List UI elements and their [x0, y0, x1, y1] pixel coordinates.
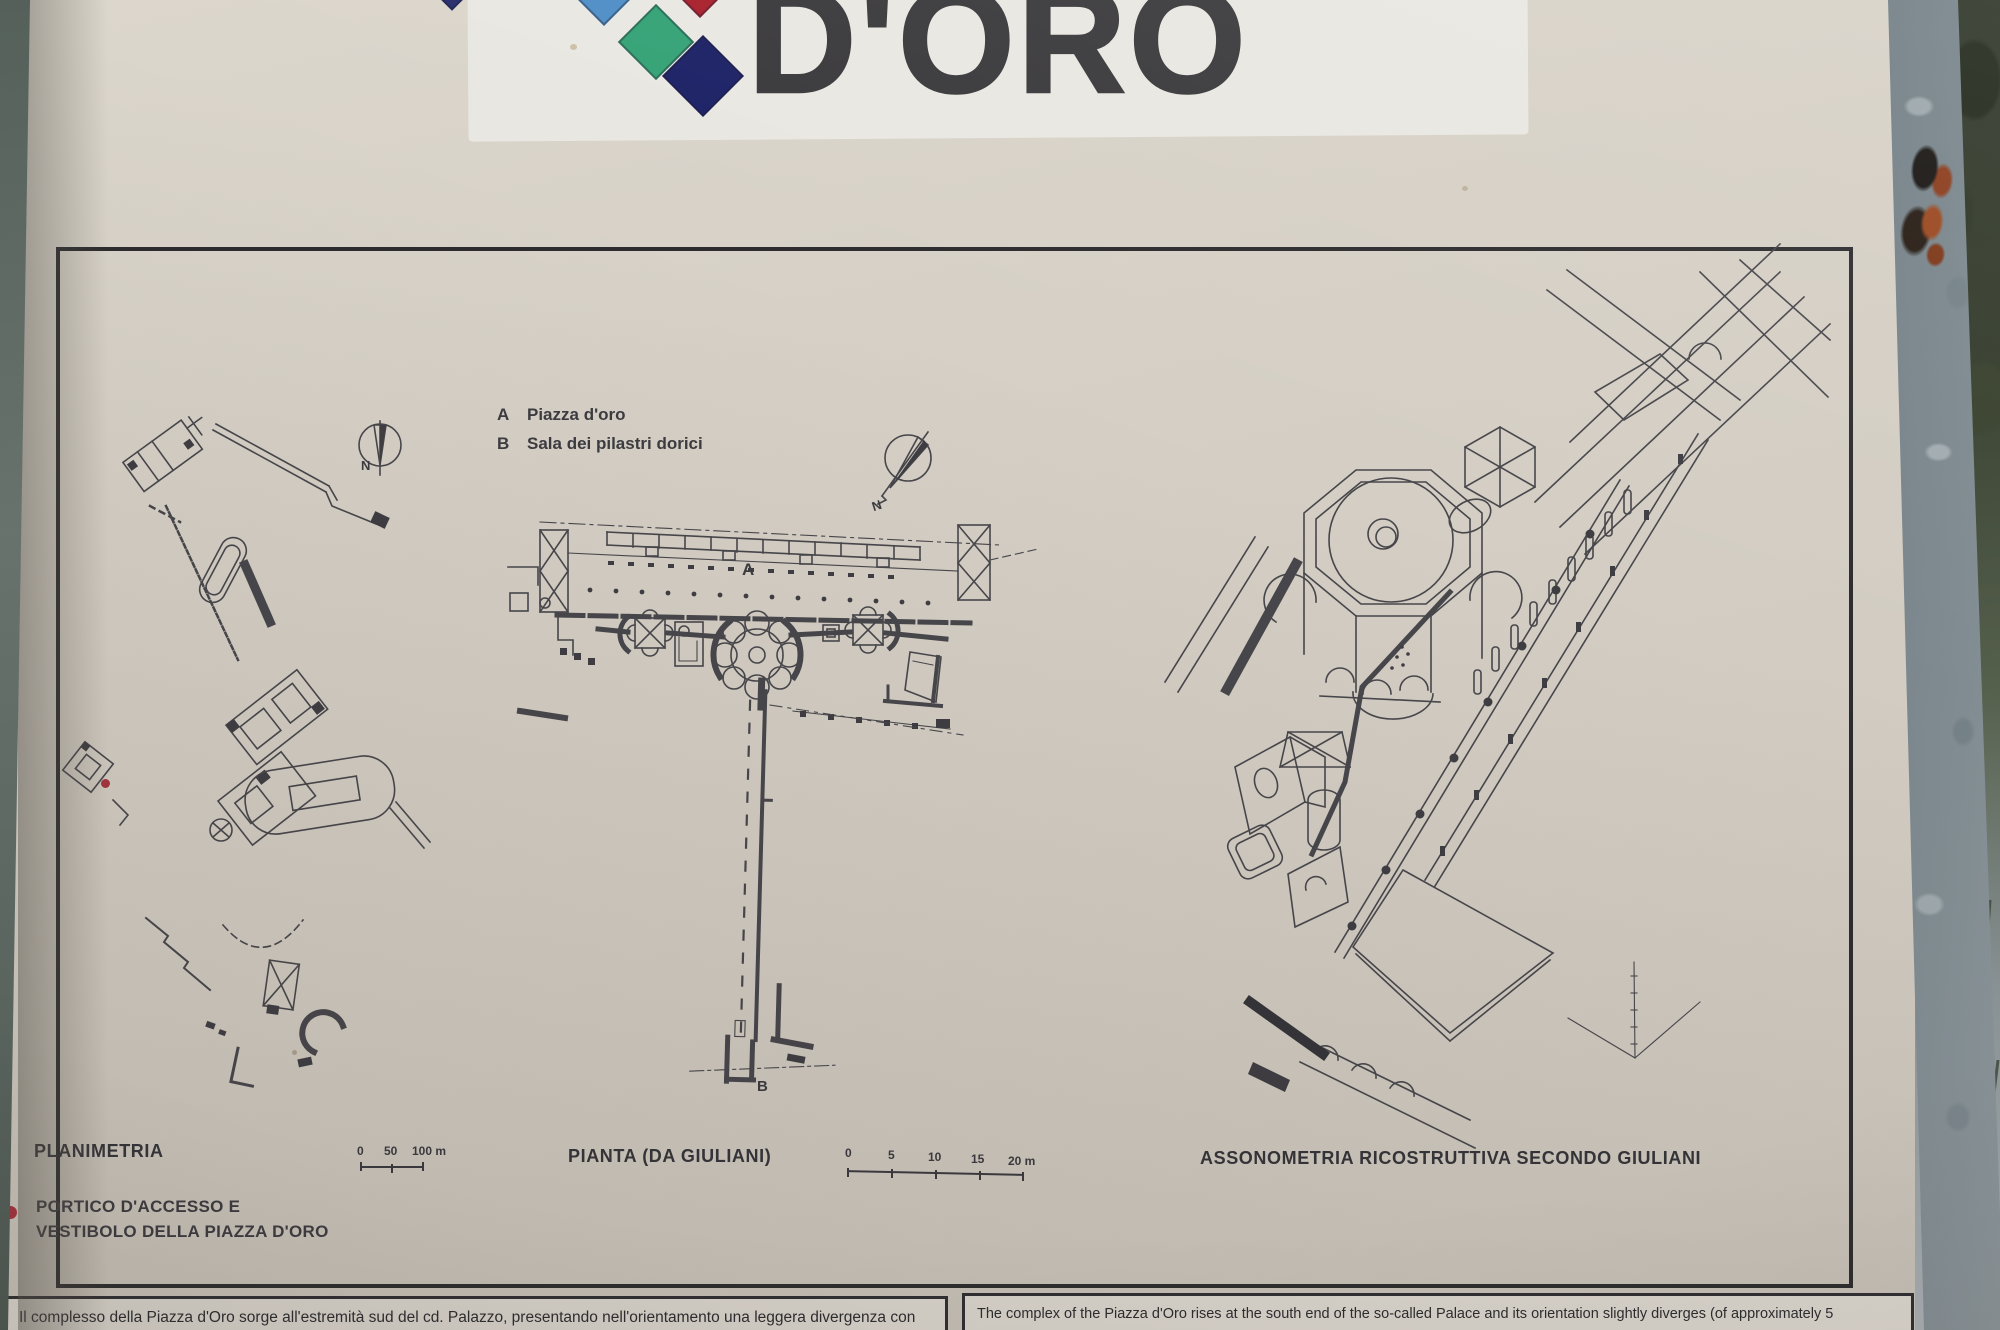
- legend-label-a: Piazza d'oro: [527, 405, 626, 425]
- section-title-pianta: PIANTA (DA GIULIANI): [568, 1146, 771, 1167]
- panel-stain: [570, 44, 577, 50]
- scalebar-tick-label: 50: [384, 1144, 397, 1158]
- caption-text-italian: Il complesso della Piazza d'Oro sorge al…: [7, 1299, 945, 1330]
- scalebar-tick-label: 20 m: [1008, 1154, 1035, 1168]
- north-arrow-icon: [348, 413, 412, 487]
- legend-key-b: B: [497, 434, 509, 454]
- pianta-floor-plan-drawing: [498, 505, 1058, 1117]
- panel-stain: [1462, 186, 1468, 191]
- scalebar-tick-label: 100 m: [412, 1144, 446, 1158]
- plan-label-a: A: [742, 560, 754, 580]
- sign-title: D'ORO: [748, 0, 1268, 115]
- caption-text-english: The complex of the Piazza d'Oro rises at…: [965, 1296, 1911, 1330]
- scalebar-tick-label: 10: [928, 1150, 941, 1164]
- assonometria-axonometric-drawing: [1140, 262, 1830, 1108]
- scalebar-tick-label: 0: [845, 1146, 852, 1160]
- plan-label-b: B: [757, 1078, 768, 1095]
- scalebar-tick-label: 0: [357, 1144, 364, 1158]
- panel-stain: [292, 1050, 297, 1055]
- scalebar-tick-label: 5: [888, 1148, 895, 1162]
- sign-photo-scene: D'ORO: [0, 0, 2000, 1330]
- section-title-assonometria: ASSONOMETRIA RICOSTRUTTIVA SECONDO GIULI…: [1200, 1148, 1701, 1169]
- caption-box-italian: Il complesso della Piazza d'Oro sorge al…: [4, 1296, 948, 1330]
- panel-edge-shadow: [18, 0, 108, 1330]
- caption-box-english: The complex of the Piazza d'Oro rises at…: [962, 1293, 1914, 1330]
- north-label: N: [361, 458, 370, 473]
- scalebar-tick-label: 15: [971, 1152, 984, 1166]
- legend-key-a: A: [497, 405, 509, 425]
- legend-label-b: Sala dei pilastri dorici: [527, 434, 703, 454]
